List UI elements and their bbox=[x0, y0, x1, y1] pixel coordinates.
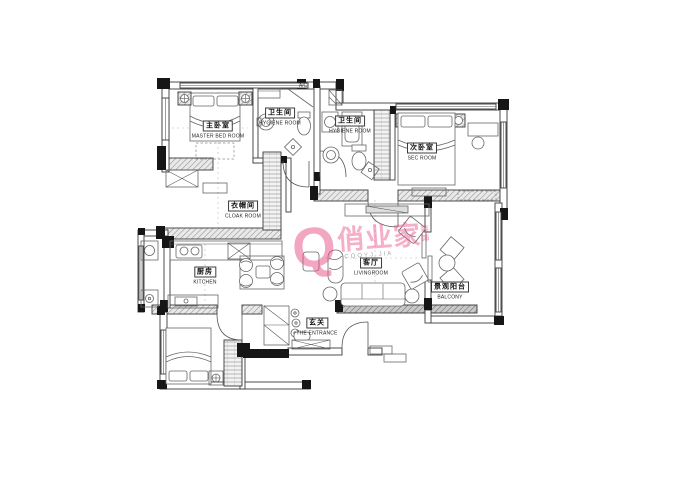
kitchen-counter bbox=[170, 241, 282, 260]
room-label-kitchen: 厨房KITCHEN bbox=[193, 261, 216, 286]
cloak-wardrobe bbox=[263, 152, 281, 230]
room-label-sec-room: 次卧室SEC ROOM bbox=[407, 137, 437, 162]
chaise-lounge bbox=[328, 250, 343, 283]
sec-desk bbox=[468, 123, 498, 149]
room-label-master-bedroom: 主卧室MASTER BED ROOM bbox=[192, 115, 244, 140]
door-bottom-room bbox=[217, 314, 242, 340]
hygiene2-sink bbox=[323, 147, 339, 163]
sec-room-wardrobe bbox=[374, 110, 390, 180]
side-table-left bbox=[323, 287, 337, 301]
door-sec-room bbox=[368, 201, 398, 227]
room-label-cloak-room: 衣帽间CLOAK ROOM bbox=[225, 195, 261, 220]
floor-plan-canvas: 主卧室MASTER BED ROOM 卫生间HYGIENE ROOM 卫生间HY… bbox=[0, 0, 680, 487]
hygiene2-toilet bbox=[352, 145, 366, 170]
side-table-right bbox=[405, 289, 419, 303]
door-main-entrance bbox=[342, 322, 368, 348]
hygiene1-shower bbox=[285, 139, 302, 156]
coffee-table bbox=[303, 252, 319, 271]
balcony-table bbox=[439, 255, 455, 271]
floor-plan-drawing bbox=[0, 0, 680, 487]
room-label-hygiene-room-1: 卫生间HYGIENE ROOM bbox=[259, 102, 301, 127]
room-label-living-room: 客厅LIVINGROOM bbox=[354, 252, 388, 277]
room-label-balcony: 景观阳台BALCONY bbox=[431, 276, 469, 301]
shoe-cabinet bbox=[264, 306, 289, 345]
room-label-entrance: 玄关THE ENTRANCE bbox=[296, 312, 337, 337]
ac-annotation: A/C bbox=[299, 83, 307, 89]
bottom-room-bed bbox=[166, 328, 211, 384]
dining-set bbox=[240, 256, 285, 289]
tv-cabinet bbox=[345, 204, 429, 216]
room-label-hygiene-room-2: 卫生间HYGIENE ROOM bbox=[329, 110, 371, 135]
